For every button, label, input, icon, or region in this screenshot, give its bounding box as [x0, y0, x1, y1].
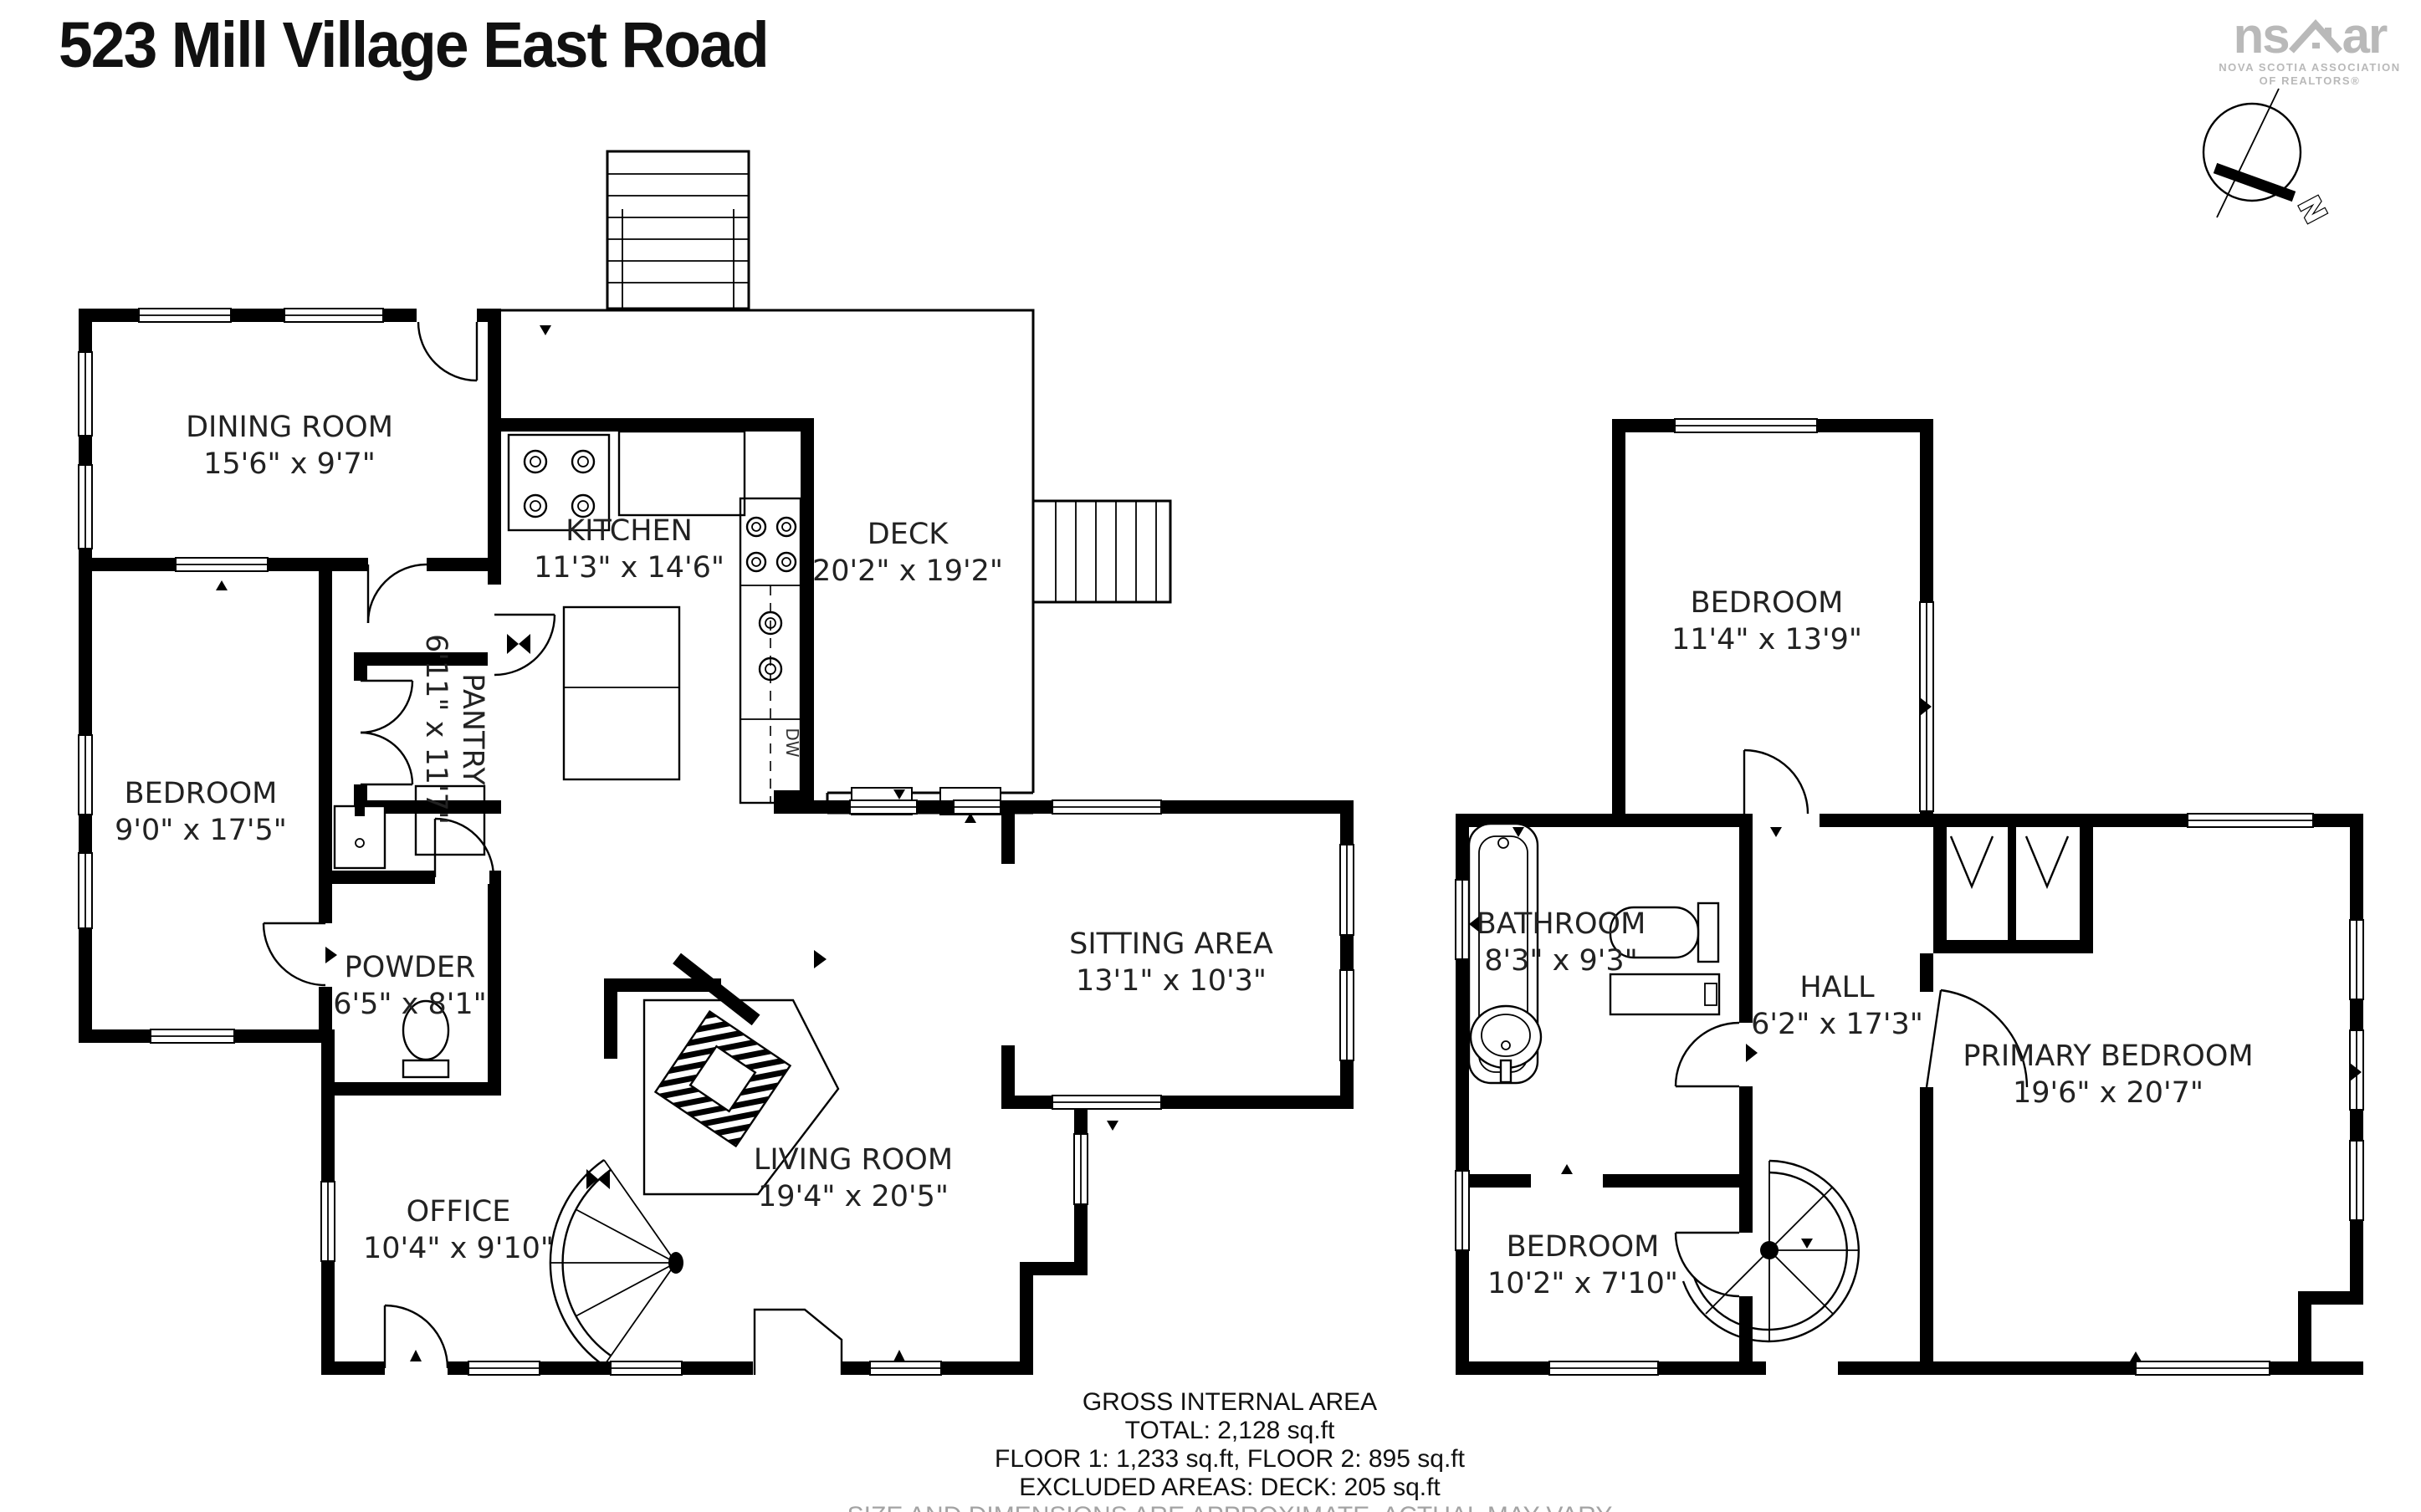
window: [2350, 1141, 2363, 1220]
room-name: SITTING AREA: [1069, 927, 1273, 961]
room-dims: 6'5" x 8'1": [333, 988, 486, 1021]
area-summary: GROSS INTERNAL AREA TOTAL: 2,128 sq.ft F…: [847, 1388, 1613, 1512]
area-heading: GROSS INTERNAL AREA: [847, 1388, 1613, 1417]
room-dims: 20'2" x 19'2": [812, 554, 1003, 588]
kitchen-right-counter: DW: [740, 498, 802, 803]
room-name: POWDER: [345, 951, 476, 984]
window: [1675, 419, 1817, 432]
kitchen-island: [564, 607, 679, 779]
room-dims: 13'1" x 10'3": [1076, 964, 1267, 998]
window: [79, 735, 92, 815]
window: [611, 1361, 682, 1375]
compass-icon: N: [2203, 89, 2333, 229]
area-excluded: EXCLUDED AREAS: DECK: 205 sq.ft: [847, 1474, 1613, 1502]
window: [2350, 920, 2363, 999]
window: [468, 1361, 540, 1375]
room-label-hall: HALL 6'2" x 17'3": [1751, 971, 1923, 1041]
floor-plan-canvas: DW: [0, 0, 2421, 1512]
room-dims: 11'3" x 14'6": [534, 551, 724, 585]
stairs-deck-icon: [1033, 501, 1170, 602]
room-dims: 11'4" x 13'9": [1671, 623, 1862, 656]
room-label-sitting-area: SITTING AREA 13'1" x 10'3": [1069, 927, 1273, 998]
window: [284, 309, 383, 322]
window: [850, 800, 917, 814]
room-dims: 8'3" x 9'3": [1484, 944, 1637, 978]
room-name: BATHROOM: [1477, 907, 1646, 941]
room-label-bedroom-bottom: BEDROOM 10'2" x 7'10": [1487, 1230, 1678, 1300]
room-name: HALL: [1799, 971, 1875, 1004]
room-label-bedroom-top: BEDROOM 11'4" x 13'9": [1671, 586, 1862, 656]
room-label-bedroom: BEDROOM 9'0" x 17'5": [115, 777, 287, 847]
room-dims: 10'2" x 7'10": [1487, 1267, 1678, 1300]
room-label-living-room: LIVING ROOM 19'4" x 20'5": [754, 1143, 953, 1213]
window: [139, 309, 231, 322]
stairs-top-icon: [607, 151, 749, 309]
window: [1456, 880, 1469, 959]
room-name: PRIMARY BEDROOM: [1963, 1039, 2253, 1073]
room-label-primary-bedroom: PRIMARY BEDROOM 19'6" x 20'7": [1963, 1039, 2253, 1110]
window: [1340, 845, 1354, 935]
winder-stairs-icon: [550, 1160, 683, 1366]
window: [1549, 1361, 1658, 1375]
window: [1052, 800, 1161, 814]
room-dims: 10'4" x 9'10": [363, 1232, 554, 1265]
room-dims: 15'6" x 9'7": [203, 447, 376, 481]
window: [954, 800, 1001, 814]
kitchen-counter: [619, 432, 745, 515]
window: [79, 465, 92, 549]
pantry-double-door: [361, 681, 412, 784]
window: [79, 853, 92, 928]
window: [1074, 1134, 1088, 1204]
room-dims: 19'6" x 20'7": [2013, 1076, 2203, 1110]
compass-north-label: N: [2290, 191, 2332, 229]
window: [1456, 1171, 1469, 1250]
room-name: DINING ROOM: [186, 411, 393, 444]
window: [151, 1029, 234, 1043]
room-name: LIVING ROOM: [754, 1143, 953, 1177]
room-name: BEDROOM: [1507, 1230, 1660, 1264]
room-name: DECK: [868, 518, 949, 551]
window: [2188, 814, 2313, 827]
room-dims: 19'4" x 20'5": [758, 1180, 949, 1213]
room-label-office: OFFICE 10'4" x 9'10": [363, 1195, 554, 1265]
window: [321, 1182, 335, 1261]
area-disclaimer: SIZE AND DIMENSIONS ARE APPROXIMATE, ACT…: [847, 1502, 1613, 1512]
room-label-powder: POWDER 6'5" x 8'1": [333, 951, 486, 1021]
vanity-icon: [1610, 974, 1719, 1014]
window: [2136, 1361, 2270, 1375]
window: [1052, 1096, 1161, 1109]
floor1-plan: DW: [79, 151, 1354, 1375]
window: [870, 1361, 941, 1375]
room-name: BEDROOM: [125, 777, 278, 810]
window: [1340, 970, 1354, 1060]
room-label-dining-room: DINING ROOM 15'6" x 9'7": [186, 411, 393, 481]
room-dims: 6'2" x 17'3": [1751, 1008, 1923, 1041]
window: [79, 352, 92, 436]
powder-sink-icon: [335, 799, 385, 868]
floor2-plan: BEDROOM 11'4" x 13'9" BATHROOM 8'3" x 9'…: [1456, 419, 2363, 1375]
floor-plan-page: 523 Mill Village East Road ns ar NOVA SC…: [0, 0, 2421, 1512]
window: [176, 558, 268, 571]
area-total: TOTAL: 2,128 sq.ft: [847, 1417, 1613, 1445]
room-dims: 9'0" x 17'5": [115, 814, 287, 847]
room-name: KITCHEN: [566, 514, 693, 548]
area-floors: FLOOR 1: 1,233 sq.ft, FLOOR 2: 895 sq.ft: [847, 1445, 1613, 1474]
room-name: OFFICE: [407, 1195, 511, 1228]
room-name: PANTRY: [456, 673, 489, 785]
room-name: BEDROOM: [1691, 586, 1844, 620]
room-label-deck: DECK 20'2" x 19'2": [812, 518, 1003, 588]
dishwasher-label: DW: [782, 728, 802, 757]
spiral-stairs-icon: [1683, 1161, 1860, 1341]
room-dims: 6'11" x 11'7": [419, 634, 453, 825]
